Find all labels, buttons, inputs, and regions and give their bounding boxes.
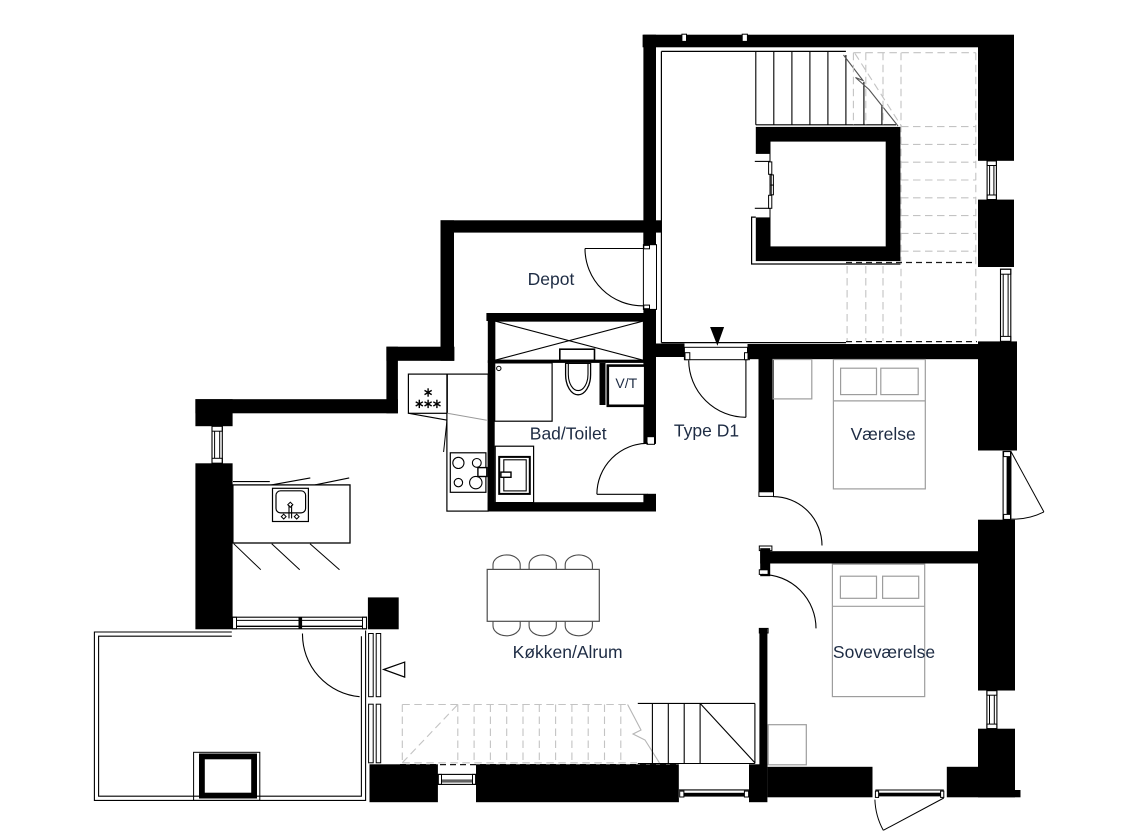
svg-text:Værelse: Værelse	[851, 424, 916, 444]
svg-text:Type D1: Type D1	[674, 420, 739, 440]
svg-text:V/T: V/T	[615, 375, 637, 391]
svg-text:Soveværelse: Soveværelse	[833, 642, 935, 662]
svg-text:Køkken/Alrum: Køkken/Alrum	[513, 642, 623, 662]
svg-text:Bad/Toilet: Bad/Toilet	[530, 423, 607, 443]
svg-text:Depot: Depot	[528, 269, 575, 289]
